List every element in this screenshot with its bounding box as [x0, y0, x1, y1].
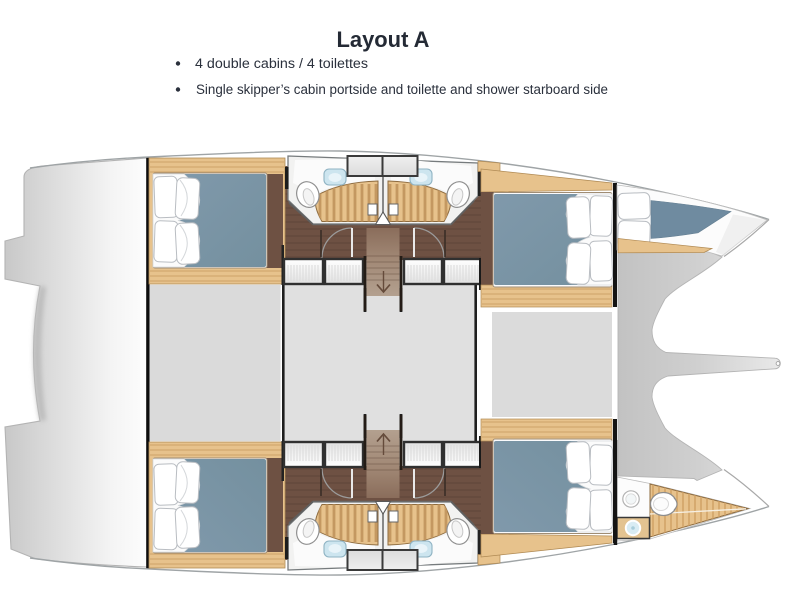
svg-text:4 double cabins / 4 toilettes: 4 double cabins / 4 toilettes — [195, 56, 368, 71]
svg-text:Layout A: Layout A — [337, 27, 430, 52]
svg-text:Single skipper’s cabin portsid: Single skipper’s cabin portside and toil… — [196, 82, 608, 97]
